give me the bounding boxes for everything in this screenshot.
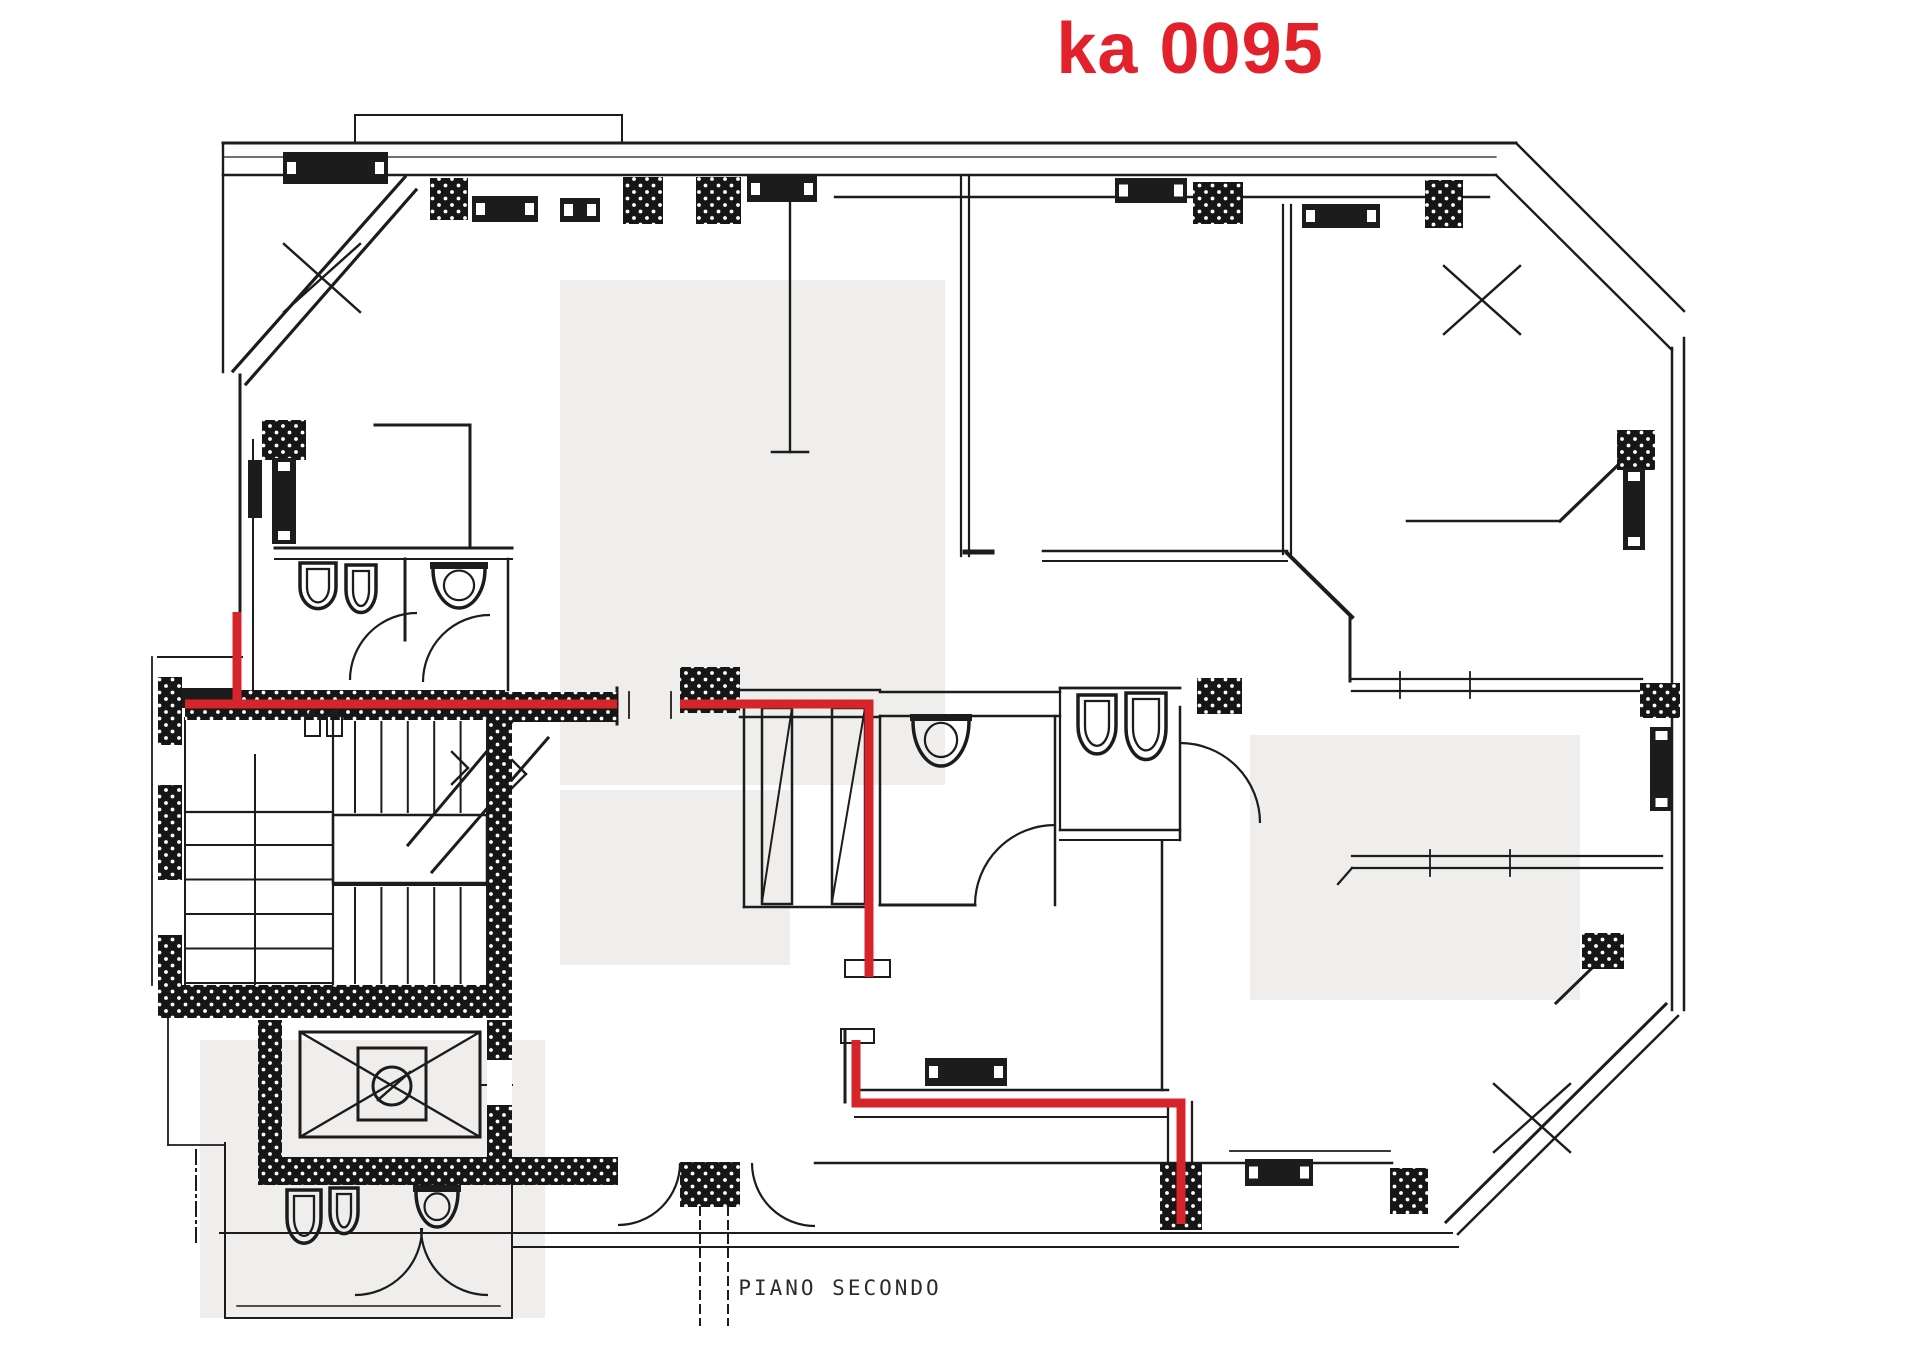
floor-plan-page: ka 0095 PIANO SECONDO — [0, 0, 1920, 1357]
floor-plan-drawing — [0, 0, 1920, 1357]
solid-elements-layer — [182, 460, 262, 708]
floor-name-label: PIANO SECONDO — [660, 1276, 1020, 1300]
plan-code-label: ka 0095 — [1020, 8, 1360, 90]
radiators-layer — [272, 152, 1673, 1186]
stair-treads-layer — [185, 722, 487, 983]
